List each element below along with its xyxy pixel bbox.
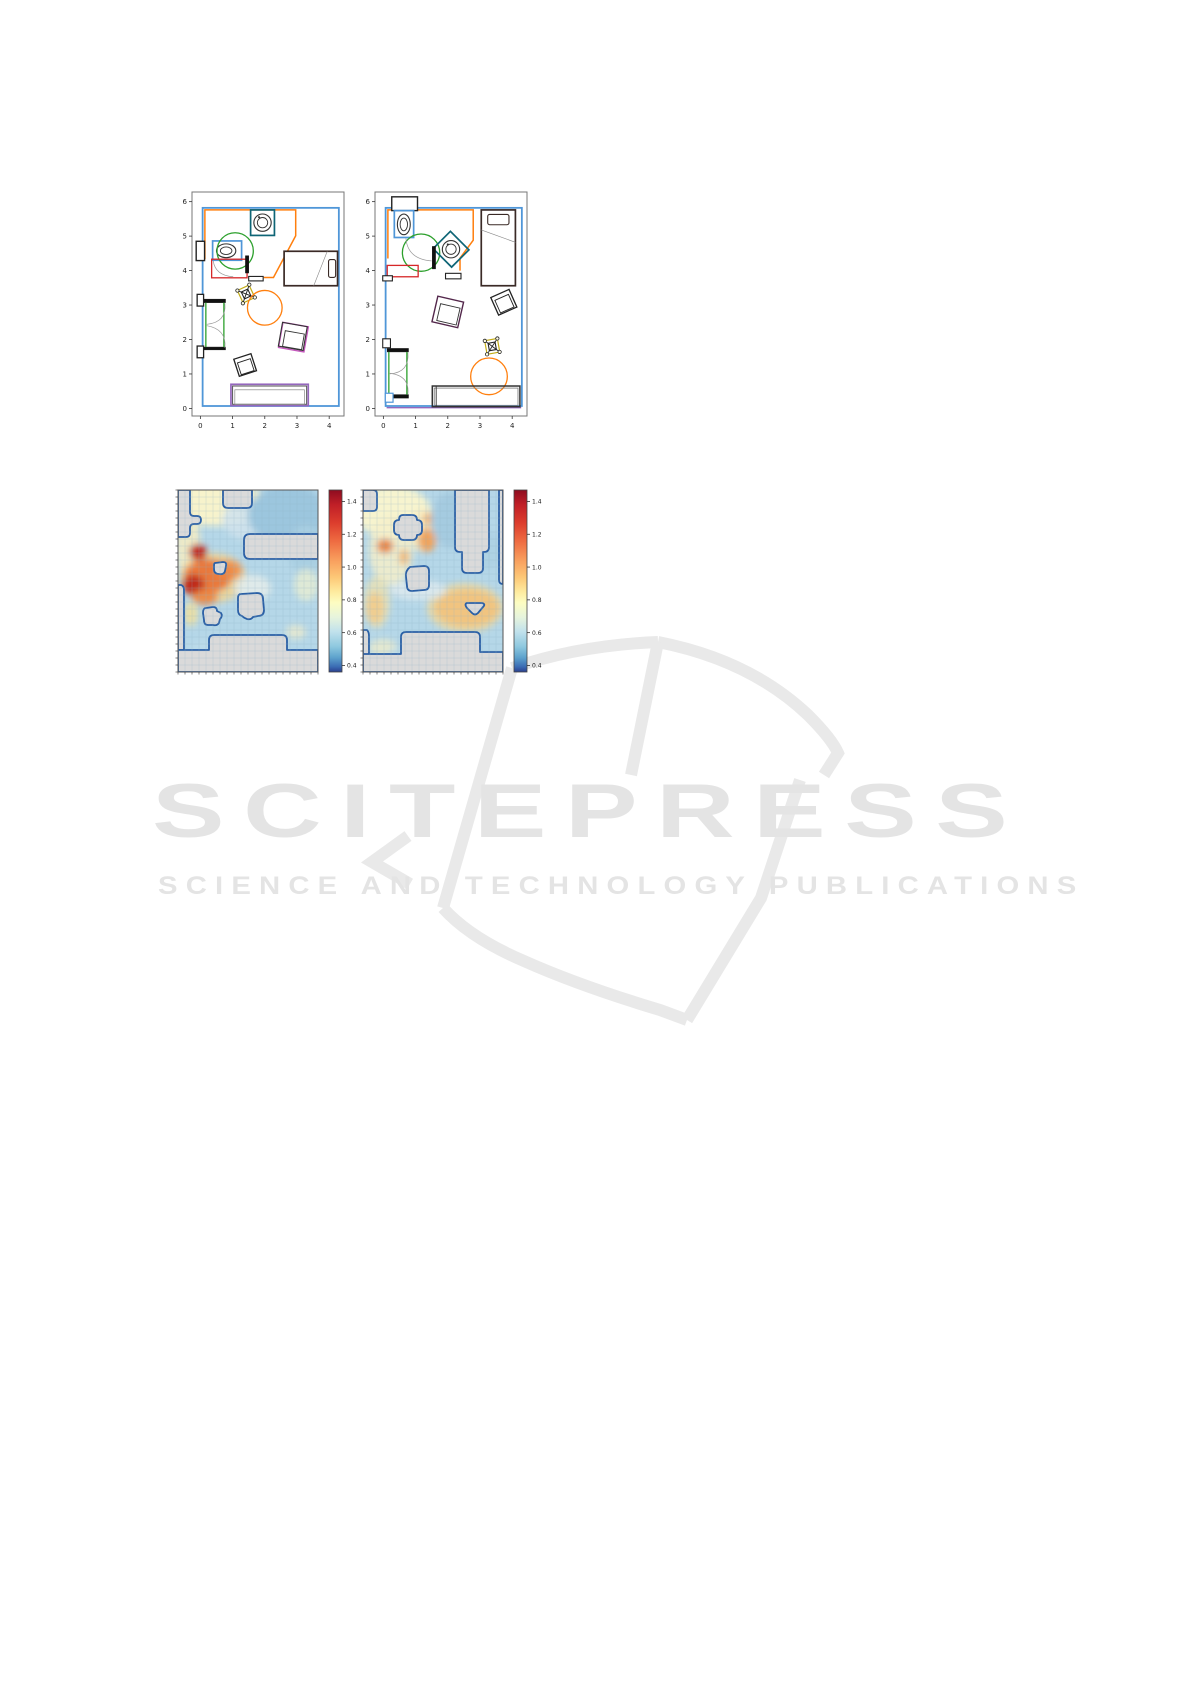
- svg-text:3: 3: [478, 422, 482, 430]
- floorplan-layout-2: 012340123456: [353, 186, 531, 438]
- svg-text:6: 6: [366, 198, 371, 206]
- svg-text:0: 0: [381, 422, 385, 430]
- svg-text:0: 0: [198, 422, 202, 430]
- svg-text:4: 4: [510, 422, 515, 430]
- watermark-subtitle: SCIENCE AND TECHNOLOGY PUBLICATIONS: [158, 874, 1084, 899]
- svg-text:1.4: 1.4: [532, 499, 542, 506]
- svg-text:0.4: 0.4: [532, 663, 542, 670]
- svg-text:1: 1: [413, 422, 417, 430]
- cost-heatmap-1: 1.41.21.00.80.60.4: [170, 488, 366, 688]
- svg-text:2: 2: [446, 422, 450, 430]
- svg-text:4: 4: [327, 422, 332, 430]
- svg-text:3: 3: [366, 302, 370, 310]
- svg-text:0.6: 0.6: [532, 630, 542, 637]
- svg-text:5: 5: [183, 233, 187, 241]
- svg-text:0.8: 0.8: [532, 597, 542, 604]
- svg-text:3: 3: [183, 302, 187, 310]
- svg-text:1.0: 1.0: [532, 564, 542, 571]
- svg-text:1.2: 1.2: [532, 531, 542, 538]
- svg-text:4: 4: [183, 267, 188, 275]
- svg-text:0: 0: [183, 405, 187, 413]
- svg-text:1: 1: [230, 422, 234, 430]
- svg-text:0: 0: [366, 405, 370, 413]
- paper-page: SCITEPRESS SCIENCE AND TECHNOLOGY PUBLIC…: [0, 0, 1191, 1684]
- cost-heatmap-2: 1.41.21.00.80.60.4: [355, 488, 551, 688]
- floorplan-layout-1: 012340123456: [170, 186, 348, 438]
- svg-text:2: 2: [183, 336, 187, 344]
- svg-text:3: 3: [295, 422, 299, 430]
- svg-text:5: 5: [366, 233, 370, 241]
- svg-text:2: 2: [263, 422, 267, 430]
- svg-text:2: 2: [366, 336, 370, 344]
- svg-text:6: 6: [183, 198, 188, 206]
- svg-text:4: 4: [366, 267, 371, 275]
- svg-text:1: 1: [183, 370, 187, 378]
- watermark-title: SCITEPRESS: [152, 774, 1026, 850]
- svg-text:1: 1: [366, 370, 370, 378]
